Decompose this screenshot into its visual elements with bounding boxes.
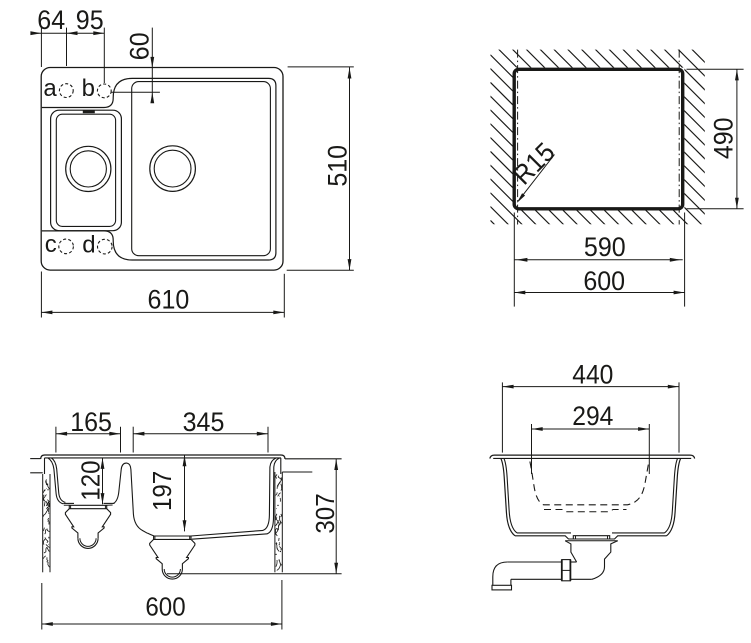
svg-text:b: b	[82, 75, 95, 102]
svg-text:610: 610	[148, 284, 190, 315]
svg-text:64: 64	[37, 4, 65, 35]
svg-text:120: 120	[77, 460, 106, 500]
svg-text:440: 440	[572, 361, 613, 390]
svg-text:294: 294	[572, 402, 613, 431]
svg-text:345: 345	[183, 406, 225, 437]
svg-text:600: 600	[583, 265, 625, 296]
svg-text:307: 307	[311, 493, 340, 533]
svg-text:165: 165	[70, 406, 112, 437]
svg-text:600: 600	[145, 593, 185, 622]
svg-text:95: 95	[76, 4, 104, 35]
svg-text:a: a	[43, 75, 57, 102]
svg-text:510: 510	[322, 145, 353, 187]
svg-text:197: 197	[148, 471, 177, 511]
svg-text:590: 590	[584, 231, 626, 262]
svg-text:d: d	[82, 231, 95, 258]
svg-text:490: 490	[708, 117, 739, 159]
svg-text:60: 60	[123, 32, 154, 60]
svg-text:c: c	[45, 231, 57, 258]
